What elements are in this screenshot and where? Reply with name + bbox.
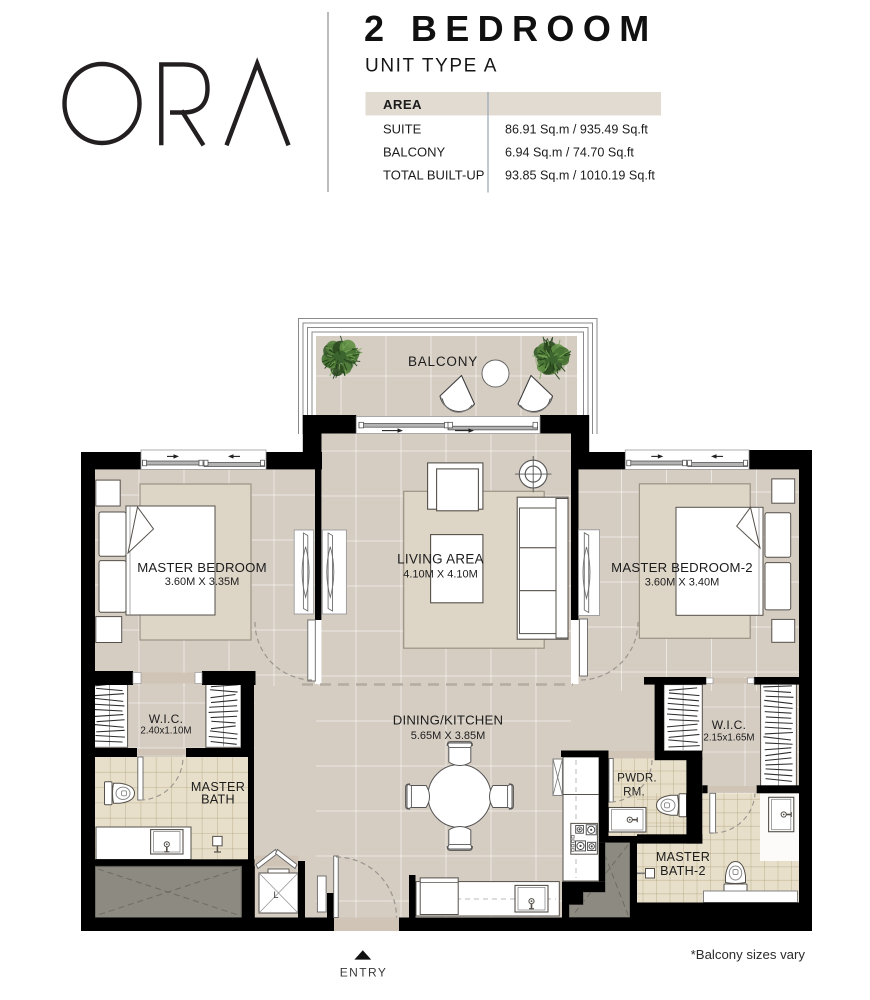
svg-text:L: L	[273, 890, 278, 900]
svg-text:BATH: BATH	[201, 793, 235, 807]
svg-text:ENTRY: ENTRY	[340, 966, 387, 980]
svg-text:SUITE: SUITE	[383, 121, 422, 136]
svg-text:*Balcony sizes vary: *Balcony sizes vary	[691, 947, 806, 962]
svg-text:93.85 Sq.m / 1010.19 Sq.ft: 93.85 Sq.m / 1010.19 Sq.ft	[505, 169, 655, 183]
svg-text:PWDR.: PWDR.	[617, 772, 657, 785]
svg-text:2 BEDROOM: 2 BEDROOM	[364, 8, 658, 49]
svg-text:AREA: AREA	[383, 97, 422, 112]
svg-text:MASTER BEDROOM-2: MASTER BEDROOM-2	[611, 560, 753, 575]
svg-text:TOTAL BUILT-UP: TOTAL BUILT-UP	[383, 168, 484, 183]
svg-text:W.I.C.: W.I.C.	[149, 712, 183, 726]
svg-text:86.91 Sq.m / 935.49 Sq.ft: 86.91 Sq.m / 935.49 Sq.ft	[505, 122, 648, 136]
svg-text:BALCONY: BALCONY	[383, 144, 445, 159]
svg-text:2.15x1.65M: 2.15x1.65M	[703, 733, 754, 744]
svg-text:MASTER BEDROOM: MASTER BEDROOM	[137, 560, 267, 575]
svg-text:4.10M X 4.10M: 4.10M X 4.10M	[403, 569, 478, 581]
svg-text:3.60M X 3.40M: 3.60M X 3.40M	[645, 577, 720, 589]
svg-text:BATH-2: BATH-2	[660, 864, 706, 878]
svg-text:LIVING AREA: LIVING AREA	[397, 552, 484, 567]
svg-text:BALCONY: BALCONY	[408, 354, 478, 369]
svg-text:6.94 Sq.m / 74.70 Sq.ft: 6.94 Sq.m / 74.70 Sq.ft	[505, 145, 634, 159]
svg-text:3.60M X 3.35M: 3.60M X 3.35M	[165, 576, 240, 588]
svg-text:5.65M X 3.85M: 5.65M X 3.85M	[411, 730, 486, 742]
svg-text:DINING/KITCHEN: DINING/KITCHEN	[393, 713, 504, 728]
svg-text:UNIT TYPE A: UNIT TYPE A	[365, 56, 498, 77]
svg-text:W.I.C.: W.I.C.	[712, 718, 746, 732]
svg-text:MASTER: MASTER	[656, 850, 710, 864]
svg-text:2.40x1.10M: 2.40x1.10M	[140, 726, 191, 737]
